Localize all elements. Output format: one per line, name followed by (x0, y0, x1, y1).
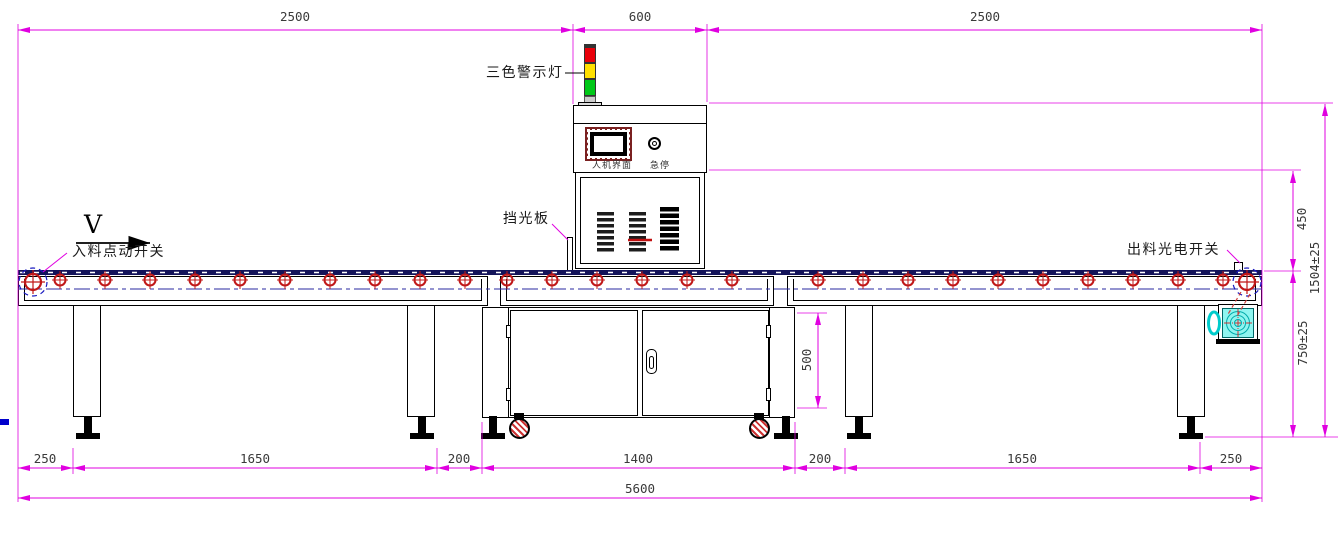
heater-stack-left (597, 212, 614, 252)
cabinet-right-stile (769, 307, 770, 418)
hmi-label: 人机界面 (592, 162, 632, 171)
light-shield-plate (567, 237, 573, 271)
dim-bottom-3: 200 (448, 453, 471, 466)
conveyor-inner-frame (24, 279, 482, 301)
leveling-foot (481, 416, 505, 439)
dim-top-right: 2500 (970, 11, 1000, 24)
door-hinge (766, 388, 771, 401)
dim-bottom-4: 1400 (623, 453, 653, 466)
leveling-foot (76, 416, 100, 439)
door-hinge (766, 325, 771, 338)
dim-right-750: 750±25 (1297, 320, 1310, 365)
dim-top-middle: 600 (629, 11, 652, 24)
dim-right-overall: 1504±25 (1309, 242, 1322, 295)
dim-top-left: 2500 (280, 11, 310, 24)
leveling-foot (1179, 416, 1203, 439)
conveyor-leg (407, 305, 435, 417)
dim-total-length: 5600 (625, 483, 655, 496)
conveyor-segment-right (787, 276, 1262, 306)
tower-light-yellow-segment (584, 63, 596, 79)
dim-cabinet-height: 500 (801, 349, 814, 372)
light-shield-label: 挡光板 (503, 212, 550, 226)
cabinet-left-stile (508, 307, 509, 418)
conveyor-segment-left (18, 276, 488, 306)
conveyor-belt-line (18, 270, 1262, 275)
dim-bottom-7: 250 (1220, 453, 1243, 466)
dim-bottom-6: 1650 (1007, 453, 1037, 466)
dim-bottom-5: 200 (809, 453, 832, 466)
tower-light-green-segment (584, 79, 596, 96)
hmi-screen (585, 127, 632, 161)
conveyor-inner-frame (506, 279, 768, 301)
drive-motor-face (1222, 308, 1254, 338)
estop-label: 急停 (650, 162, 670, 171)
tower-light-red-segment (584, 47, 596, 63)
outfeed-switch-label: 出料光电开关 (1127, 243, 1220, 257)
door-hinge (506, 325, 511, 338)
hmi-screen-bezel (590, 132, 627, 156)
leveling-foot (774, 416, 798, 439)
door-handle-slot (649, 356, 654, 369)
annotation-layer (0, 0, 1341, 550)
dim-bottom-2: 1650 (240, 453, 270, 466)
conveyor-leg (845, 305, 873, 417)
engineering-drawing-canvas: V 三色警示灯 挡光板 入料点动开关 出料光电开关 人机界面 急停 2500 6… (0, 0, 1341, 550)
conveyor-inner-frame (793, 279, 1256, 301)
flow-direction-letter: V (84, 212, 102, 237)
conveyor-leg (1177, 305, 1205, 417)
leveling-foot (847, 416, 871, 439)
control-head-top-strip (573, 105, 707, 124)
infeed-switch-label: 入料点动开关 (72, 245, 165, 259)
heater-stack-right (660, 207, 679, 252)
conveyor-leg (73, 305, 101, 417)
dim-bottom-1: 250 (34, 453, 57, 466)
drive-motor-base (1216, 339, 1260, 344)
leveling-foot (410, 416, 434, 439)
emergency-stop-button (648, 137, 661, 150)
caster-wheel (749, 418, 770, 439)
heater-stack-middle (629, 212, 646, 252)
cabinet-door-left (510, 310, 638, 416)
conveyor-segment-middle (500, 276, 774, 306)
caster-wheel (509, 418, 530, 439)
warning-light-label: 三色警示灯 (486, 66, 564, 80)
blue-mark-artifact (0, 419, 9, 425)
dim-right-450: 450 (1296, 208, 1309, 231)
outfeed-sensor-body (1234, 262, 1243, 271)
cabinet-door-right (642, 310, 769, 416)
door-hinge (506, 388, 511, 401)
